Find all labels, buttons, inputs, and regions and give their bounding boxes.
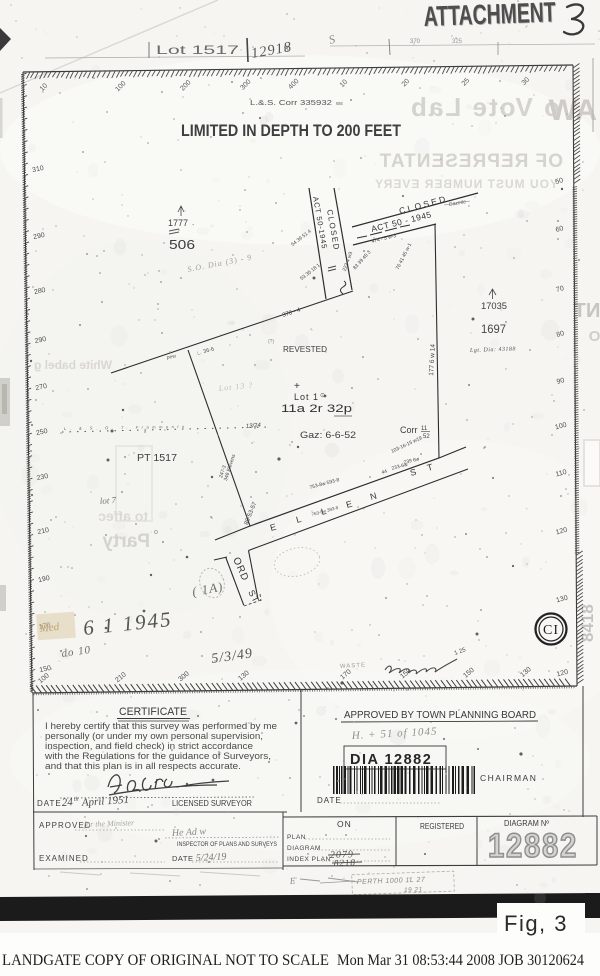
svg-text:o: o bbox=[154, 529, 158, 536]
svg-text:11: 11 bbox=[421, 426, 428, 432]
svg-text:DIAGRAM: DIAGRAM bbox=[287, 845, 321, 852]
svg-text:INSPECTOR OF PLANS AND SURVEYS: INSPECTOR OF PLANS AND SURVEYS bbox=[177, 841, 277, 848]
svg-text:17035: 17035 bbox=[481, 301, 507, 311]
svg-text:ON: ON bbox=[337, 819, 352, 829]
svg-text:REGISTERED: REGISTERED bbox=[420, 821, 464, 831]
svg-text:1777: 1777 bbox=[168, 218, 188, 229]
svg-text:(?): (?) bbox=[268, 339, 274, 345]
svg-text:.: . bbox=[192, 218, 194, 227]
svg-text:Corr: Corr bbox=[400, 425, 418, 435]
svg-text:with the Regulations for the g: with the Regulations for the guidance of… bbox=[44, 751, 271, 761]
svg-text:LICENSED SURVEYOR: LICENSED SURVEYOR bbox=[172, 798, 252, 808]
svg-text:He Ad w: He Ad w bbox=[171, 826, 207, 839]
svg-text:+: + bbox=[294, 381, 300, 392]
svg-text:PT 1517: PT 1517 bbox=[137, 453, 177, 464]
svg-text:CERTIFICATE: CERTIFICATE bbox=[119, 706, 187, 718]
svg-text:YOU MUST NUMBER EVERY: YOU MUST NUMBER EVERY bbox=[374, 177, 558, 191]
svg-text:DATE: DATE bbox=[317, 796, 342, 805]
svg-text:Gaz: 6-6-52: Gaz: 6-6-52 bbox=[300, 430, 356, 440]
svg-text:AW: AW bbox=[548, 94, 597, 127]
svg-text:24: 24 bbox=[61, 796, 73, 809]
svg-text:BBO: BBO bbox=[588, 328, 600, 345]
svg-text:CI: CI bbox=[543, 623, 559, 638]
svg-text:DIA 12882: DIA 12882 bbox=[350, 752, 432, 768]
svg-text:19 21: 19 21 bbox=[404, 886, 423, 894]
svg-text:1697: 1697 bbox=[481, 322, 506, 336]
svg-text:INDEX PLAN: INDEX PLAN bbox=[287, 856, 331, 863]
svg-text:LIMITED IN DEPTH TO 200 FEET: LIMITED IN DEPTH TO 200 FEET bbox=[181, 122, 401, 140]
svg-text:11a 2r 32p: 11a 2r 32p bbox=[281, 403, 352, 415]
svg-text:8: 8 bbox=[283, 44, 289, 54]
svg-text:Lot 1: Lot 1 bbox=[294, 392, 319, 402]
svg-text:325: 325 bbox=[452, 39, 463, 45]
svg-text:I hereby certify that this sur: I hereby certify that this survey was pe… bbox=[45, 721, 277, 731]
svg-text:Fig, 3: Fig, 3 bbox=[504, 911, 568, 936]
svg-text:White babel g: White babel g bbox=[34, 358, 112, 372]
svg-text:ATTACHMENT: ATTACHMENT bbox=[423, 0, 556, 32]
svg-text:Med: Med bbox=[38, 621, 60, 635]
svg-text:DATE: DATE bbox=[37, 799, 62, 808]
svg-text:52: 52 bbox=[423, 434, 430, 440]
svg-text:Mon Mar 31 08:53:44 2008 JOB 3: Mon Mar 31 08:53:44 2008 JOB 30120624 bbox=[337, 952, 584, 969]
svg-text:lot 7: lot 7 bbox=[99, 495, 116, 506]
svg-text:personally (or under my own pe: personally (or under my own personal sup… bbox=[45, 731, 263, 741]
svg-text:L.&.S. Corr 335932: L.&.S. Corr 335932 bbox=[250, 100, 332, 107]
svg-text:inspection, and field check) i: inspection, and field check) in strict a… bbox=[45, 741, 253, 751]
svg-text:370: 370 bbox=[410, 39, 421, 45]
svg-text:506: 506 bbox=[169, 238, 195, 252]
svg-text:ws: ws bbox=[335, 101, 343, 107]
svg-text:CHAIRMAN: CHAIRMAN bbox=[480, 773, 537, 783]
svg-text:PLAN: PLAN bbox=[287, 834, 306, 841]
svg-text:Lot 1517: Lot 1517 bbox=[156, 45, 239, 57]
svg-text:DATE: DATE bbox=[172, 854, 193, 863]
svg-text:LANDGATE COPY OF ORIGINAL NOT: LANDGATE COPY OF ORIGINAL NOT TO SCALE bbox=[2, 952, 329, 969]
svg-text:and that this plan is in all r: and that this plan is in all respects ac… bbox=[45, 761, 241, 771]
svg-text:APPROVED BY TOWN PLANNING BOAR: APPROVED BY TOWN PLANNING BOARD bbox=[344, 709, 536, 721]
svg-text:OF REPRESENTAT: OF REPRESENTAT bbox=[379, 151, 563, 172]
svg-text:o Vote Lab: o Vote Lab bbox=[409, 92, 560, 122]
svg-text:th: th bbox=[74, 797, 79, 803]
